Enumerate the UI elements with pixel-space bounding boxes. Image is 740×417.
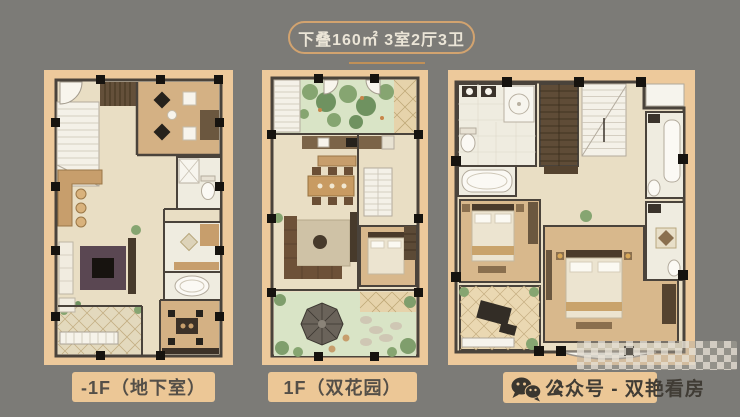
bedroom [360,226,416,286]
hall-plant [580,210,592,222]
floor2-stairs [582,84,626,156]
floorplan-poster: 下叠160㎡ 3室2厅3卫 [0,0,740,417]
ensuite-bathroom [646,202,684,280]
stairs-up [364,168,392,216]
censored-mosaic [577,341,737,370]
panel-floor1 [262,70,428,365]
dining-set [308,167,354,205]
bathroom-tub [164,272,221,300]
floor-label-floor1: 1F（双花园） [268,372,417,402]
panel-floor2 [448,70,695,365]
terrace [459,286,540,350]
floor-label-basement: -1F（地下室） [72,372,215,402]
floor2-floorplan [448,70,695,365]
floor1-floorplan [262,70,428,365]
bathroom-shower-toilet [177,157,221,209]
lattice-patio-right [394,80,416,134]
title-divider [349,62,425,64]
hall-console [544,166,578,174]
wechat-icon [510,376,542,407]
storage-cabinet [100,82,137,106]
rear-garden [274,292,416,357]
floor1-stairs [274,80,300,132]
basement-floorplan [44,70,233,365]
title-badge: 下叠160㎡ 3室2厅3卫 [288,21,475,54]
dressing-room [164,222,221,272]
watermark-text: 公众号 - 双艳看房 [545,371,705,403]
equipment-platform [646,84,684,106]
panel-basement [44,70,233,365]
walk-in-closet [540,84,578,166]
bedroom-2 [460,200,540,282]
